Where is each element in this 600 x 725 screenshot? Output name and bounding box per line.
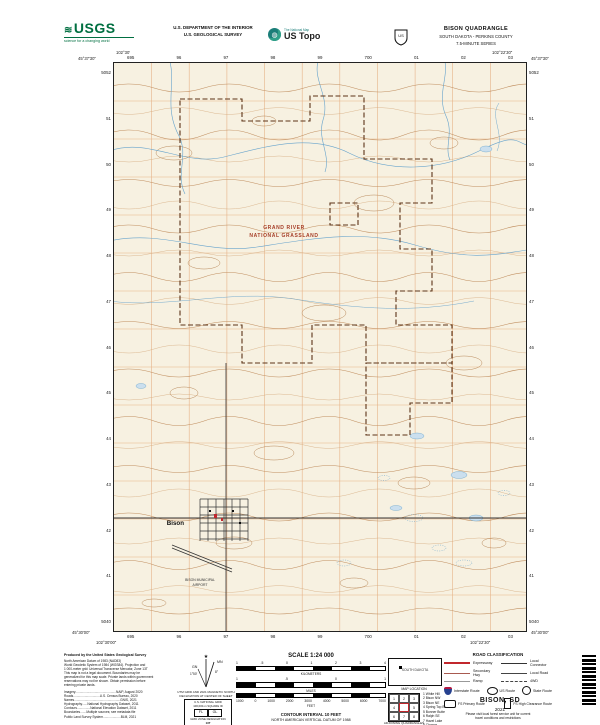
list-item: 98 (270, 55, 275, 60)
list-item: 41 (529, 573, 534, 578)
quad-series: 7.5-MINUTE SERIES (408, 41, 544, 46)
scale-bar-feet (236, 693, 386, 698)
list-item: 2 (335, 661, 337, 665)
corner-bottomleft-lon: 102°30'00" (96, 640, 116, 645)
secondary-hwy-line-icon (444, 673, 470, 674)
list-item: 2000 (286, 699, 294, 703)
legend-local-connector: Local Connector (501, 659, 552, 667)
list-item: 1000 (236, 699, 244, 703)
legend-state-route: State Route (522, 686, 552, 695)
list-item: 51 (529, 116, 534, 121)
usng-square-ids: FL GL (185, 709, 231, 717)
list-item: 44 (529, 436, 534, 441)
contour-lines (114, 84, 526, 614)
list-item: 47 (106, 299, 111, 304)
list-item: 49 (106, 207, 111, 212)
current-quad-cell (399, 703, 409, 712)
grassland-label-line1: GRAND RIVER (263, 225, 305, 231)
list-item: 48 (106, 253, 111, 258)
list-item: .5 (261, 661, 264, 665)
forest-service-shield-icon: US (394, 29, 408, 46)
miles-ticks: 1.501 (236, 677, 386, 681)
list-item: 3000 (304, 699, 312, 703)
list-item: 46 (529, 345, 534, 350)
list-item: 5052 (101, 70, 111, 75)
list-item: 48 (529, 253, 534, 258)
ustopo-logo: ◍ The National Map US Topo (268, 28, 320, 41)
legend-expressway: Expressway (444, 659, 495, 667)
feet-unit: FEET (236, 704, 386, 708)
list-item: 49 (529, 207, 534, 212)
usgs-wave-icon: ≋ (64, 25, 73, 36)
list-item: 1 (236, 677, 238, 681)
list-item: .5 (285, 677, 288, 681)
km-unit: KILOMETERS (236, 672, 386, 676)
topo-map-graphic: GRAND RIVER NATIONAL GRASSLAND Bison (114, 63, 526, 631)
local-road-line-icon (501, 673, 527, 674)
true-north-star-icon: ★ (204, 654, 209, 660)
list-item: 97 (223, 634, 228, 639)
gn-value: 1°50' (190, 672, 198, 676)
list-item: Public Land Survey System...............… (64, 715, 180, 719)
quad-title: BISON QUADRANGLE (408, 26, 544, 32)
contour-loops (142, 116, 506, 607)
list-item: 99 (318, 55, 323, 60)
ramp-line-icon (444, 681, 470, 682)
list-item: 5040 (529, 619, 539, 624)
list-item: 700 (365, 634, 372, 639)
fourwd-line-icon (501, 681, 527, 682)
expressway-line-icon (444, 662, 470, 664)
usng-box: U.S. NATIONAL GRID 100,000-m SQUARE ID F… (184, 699, 232, 725)
legend-secondary-hwy: Secondary Hwy (444, 669, 495, 677)
legend-4wd: 4WD (501, 679, 552, 683)
print-control-strip (582, 655, 596, 705)
declination-caption: UTM GRID AND 2021 MAGNETIC NORTH DECLINA… (168, 690, 244, 698)
dept-line1: U.S. DEPARTMENT OF THE INTERIOR (138, 25, 288, 32)
usgs-tagline: science for a changing world (64, 37, 134, 43)
list-item: 45 (529, 390, 534, 395)
credits-title: Produced by the United States Geological… (64, 653, 180, 658)
list-item: 51 (106, 116, 111, 121)
quad-subtitle: SOUTH DAKOTA - PERKINS COUNTY (408, 34, 544, 39)
credits-lines: North American Datum of 1983 (NAD83)Worl… (64, 659, 180, 688)
quadrangle-title-block: BISON QUADRANGLE SOUTH DAKOTA - PERKINS … (408, 26, 544, 46)
map-location-caption: MAP LOCATION (388, 687, 440, 691)
list-item: 1 (310, 661, 312, 665)
gn-label: GN (192, 665, 198, 669)
declination-diagram: ★ MN 8° GN 1°50' (184, 653, 228, 691)
usgs-topo-sheet: ≋USGS science for a changing world U.S. … (0, 0, 600, 725)
list-item: 99 (318, 634, 323, 639)
department-heading: U.S. DEPARTMENT OF THE INTERIOR U.S. GEO… (138, 25, 288, 38)
list-item: 01 (414, 634, 419, 639)
list-item: 98 (270, 634, 275, 639)
state-locator: SOUTH DAKOTA (388, 658, 442, 686)
sheet-title-block: BISON, SD 2021 (450, 697, 550, 712)
list-item: 03 (508, 55, 513, 60)
list-item: 5040 (101, 619, 111, 624)
list-item: 97 (223, 55, 228, 60)
map-area: GRAND RIVER NATIONAL GRASSLAND Bison (113, 62, 527, 632)
town-buildings (209, 510, 241, 524)
list-item: 695 (127, 634, 134, 639)
list-item: 5052 (529, 70, 539, 75)
adjoining-quads-grid: 1 2 3 4 5 6 7 8 (388, 693, 420, 722)
list-item: 3 (360, 661, 362, 665)
national-map-globe-icon: ◍ (268, 28, 281, 41)
list-item: 4 (384, 661, 386, 665)
town-street-grid (200, 499, 248, 541)
data-sources: Imagery.................................… (64, 690, 180, 719)
sheet-title: BISON, SD (450, 697, 550, 704)
ustopo-name: US Topo (284, 32, 320, 41)
usng-subtitle: 100,000-m SQUARE ID (185, 705, 231, 709)
grassland-label: GRAND RIVER NATIONAL GRASSLAND (249, 225, 318, 239)
list-item: 1 (236, 661, 238, 665)
feet-ticks: 100001000200030004000500060007000 (236, 699, 386, 703)
legend-us-route: US Route (487, 687, 516, 695)
list-item: 02 (461, 55, 466, 60)
airport-runway (172, 545, 232, 572)
usgs-logo: ≋USGS science for a changing world (64, 22, 134, 43)
mn-label: MN (217, 660, 223, 664)
corner-topright-lat: 45°37'30" (531, 56, 549, 61)
list-item: 46 (106, 345, 111, 350)
quad-location-marker (399, 666, 402, 669)
list-item: 96 (176, 55, 181, 60)
corner-bottomright-lon: 102°22'30" (470, 640, 490, 645)
scale-title: SCALE 1:24 000 (236, 653, 386, 659)
svg-text:US: US (398, 33, 404, 38)
legend-interstate: Interstate Route (444, 687, 480, 695)
usgs-logo-text: USGS (74, 20, 116, 36)
local-connector-line-icon (501, 663, 527, 664)
svg-text:BISON MUNICIPAL: BISON MUNICIPAL (185, 578, 215, 582)
list-item: 43 (529, 482, 534, 487)
sheet-year: 2021 (450, 707, 550, 712)
list-item: 42 (529, 528, 534, 533)
streams (114, 63, 526, 308)
legend-local-road: Local Road (501, 669, 552, 677)
dept-line2: U.S. GEOLOGICAL SURVEY (138, 32, 288, 39)
scale-bar-miles (236, 682, 386, 688)
usng-zone: 13T (185, 722, 231, 725)
legend-ramp: Ramp (444, 679, 495, 683)
utm-northing-labels-left: 505251504948474645444342415040 (90, 62, 111, 632)
airport-label: BISON MUNICIPAL AIRPORT (185, 578, 215, 587)
utm-easting-labels-bottom: 69596979899700010203 (113, 634, 527, 639)
list-item: 96 (176, 634, 181, 639)
list-item: 5000 (341, 699, 349, 703)
scale-block: SCALE 1:24 000 1.501234 KILOMETERS 1.501… (236, 653, 386, 725)
list-item: 01 (414, 55, 419, 60)
list-item: 700 (365, 55, 372, 60)
us-route-oval-icon (487, 687, 498, 695)
list-item: 41 (106, 573, 111, 578)
list-item: 44 (106, 436, 111, 441)
list-item: 0 (255, 699, 257, 703)
list-item: entering private lands. (64, 683, 180, 687)
list-item: 1 (384, 677, 386, 681)
km-ticks: 1.501234 (236, 661, 386, 665)
list-item: 0 (286, 661, 288, 665)
utm-northing-labels-right: 505251504948474645444342415040 (529, 62, 551, 632)
contour-interval-note: CONTOUR INTERVAL 10 FEET NORTH AMERICAN … (236, 712, 386, 724)
list-item: 6000 (360, 699, 368, 703)
road-class-title: ROAD CLASSIFICATION (444, 652, 552, 657)
list-item: 7000 (378, 699, 386, 703)
list-item: 1000 (267, 699, 275, 703)
road-class-note: Please visit local forest service unit f… (444, 712, 552, 721)
mn-value: 8° (215, 670, 219, 674)
list-item: 47 (529, 299, 534, 304)
state-route-circle-icon (522, 686, 531, 695)
corner-topleft-lat: 45°37'30" (78, 56, 96, 61)
list-item: 0 (335, 677, 337, 681)
utm-easting-labels-top: 69596979899700010203 (113, 55, 527, 60)
list-item: 42 (106, 528, 111, 533)
list-item: 695 (127, 55, 134, 60)
grassland-boundary (180, 96, 452, 435)
list-item: 02 (461, 634, 466, 639)
grassland-label-line2: NATIONAL GRASSLAND (249, 233, 318, 239)
interstate-shield-icon (444, 687, 452, 695)
town-label: Bison (167, 520, 184, 527)
list-item: 45 (106, 390, 111, 395)
list-item: 43 (106, 482, 111, 487)
corner-bottomleft-lat: 45°30'00" (72, 630, 90, 635)
scale-bar-km (236, 666, 386, 671)
list-item: 50 (529, 162, 534, 167)
list-item: 50 (106, 162, 111, 167)
production-credits: Produced by the United States Geological… (64, 653, 180, 719)
state-name: SOUTH DAKOTA (389, 668, 441, 672)
roads (114, 363, 526, 631)
plss-section-grid (114, 63, 526, 631)
list-item: 4000 (323, 699, 331, 703)
svg-text:AIRPORT: AIRPORT (192, 583, 207, 587)
adjoining-quads-caption: ADJOINING QUADRANGLES (382, 721, 426, 725)
list-item: 03 (508, 634, 513, 639)
